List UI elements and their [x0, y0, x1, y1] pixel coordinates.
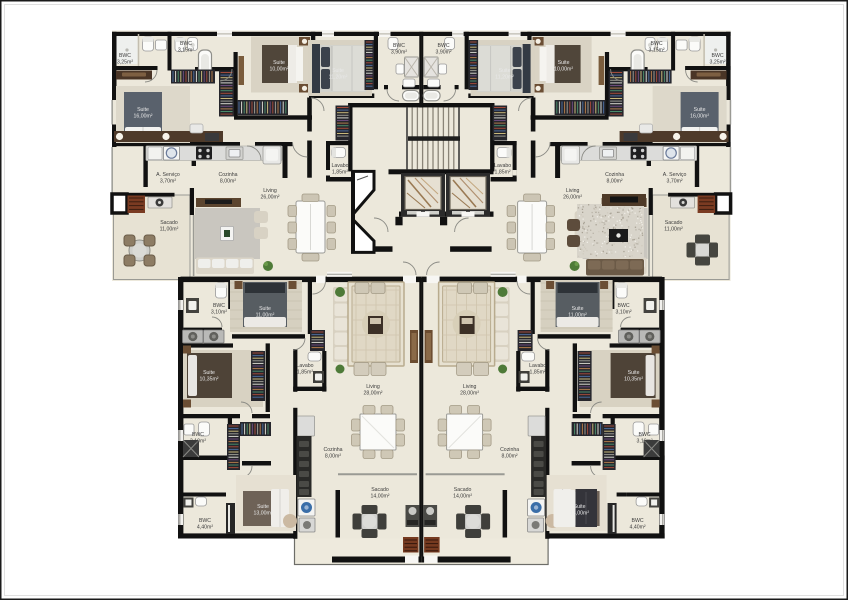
- svg-text:3,10m²: 3,10m²: [637, 438, 653, 444]
- svg-text:16,00m²: 16,00m²: [133, 113, 152, 119]
- svg-text:Suite: Suite: [257, 504, 269, 510]
- svg-text:Sacado: Sacado: [371, 487, 389, 493]
- svg-text:BWC: BWC: [651, 41, 663, 47]
- svg-text:BWC: BWC: [199, 518, 211, 524]
- svg-text:11,00m²: 11,00m²: [160, 226, 179, 232]
- svg-text:11,00m²: 11,00m²: [664, 226, 683, 232]
- svg-text:Suite: Suite: [203, 370, 215, 376]
- svg-text:14,00m²: 14,00m²: [370, 493, 389, 499]
- svg-text:13,00m²: 13,00m²: [570, 510, 589, 516]
- svg-text:BWC: BWC: [632, 518, 644, 524]
- svg-text:8,00m²: 8,00m²: [502, 453, 518, 459]
- svg-text:26,00m²: 26,00m²: [260, 194, 279, 200]
- svg-text:Lavabo: Lavabo: [494, 163, 511, 169]
- svg-text:8,00m²: 8,00m²: [325, 453, 341, 459]
- svg-text:BWC: BWC: [393, 43, 405, 49]
- svg-text:A. Serviço: A. Serviço: [663, 172, 687, 178]
- svg-text:10,00m²: 10,00m²: [554, 66, 573, 72]
- svg-text:8,00m²: 8,00m²: [220, 178, 236, 184]
- svg-text:BWC: BWC: [639, 432, 651, 438]
- svg-text:3,10m²: 3,10m²: [616, 309, 632, 315]
- svg-text:Living: Living: [566, 188, 580, 194]
- svg-text:Living: Living: [366, 384, 380, 390]
- svg-text:Suite: Suite: [558, 60, 570, 66]
- svg-text:Suite: Suite: [259, 306, 271, 312]
- svg-text:1,85m²: 1,85m²: [530, 369, 546, 375]
- svg-text:Lavabo: Lavabo: [331, 163, 348, 169]
- svg-text:4,40m²: 4,40m²: [197, 524, 213, 530]
- svg-text:Suite: Suite: [332, 68, 344, 74]
- svg-text:BWC: BWC: [180, 41, 192, 47]
- svg-text:16,00m²: 16,00m²: [690, 113, 709, 119]
- svg-text:14,00m²: 14,00m²: [453, 493, 472, 499]
- svg-text:3,25m²: 3,25m²: [710, 59, 726, 65]
- svg-text:3,70m²: 3,70m²: [160, 178, 176, 184]
- svg-text:Suite: Suite: [137, 107, 149, 113]
- svg-text:13,00m²: 13,00m²: [253, 510, 272, 516]
- svg-text:BWC: BWC: [213, 303, 225, 309]
- svg-text:Cozinha: Cozinha: [323, 447, 342, 453]
- svg-text:BWC: BWC: [618, 303, 630, 309]
- svg-text:Suite: Suite: [499, 68, 511, 74]
- svg-text:3,15m²: 3,15m²: [649, 47, 665, 53]
- svg-text:Sacado: Sacado: [454, 487, 472, 493]
- svg-text:Suite: Suite: [572, 306, 584, 312]
- svg-text:10,00m²: 10,00m²: [269, 66, 288, 72]
- svg-text:11,20m²: 11,20m²: [329, 74, 348, 80]
- svg-text:8,00m²: 8,00m²: [607, 178, 623, 184]
- svg-text:28,00m²: 28,00m²: [363, 390, 382, 396]
- svg-text:3,15m²: 3,15m²: [178, 47, 194, 53]
- svg-text:Cozinha: Cozinha: [500, 447, 519, 453]
- svg-text:1,85m²: 1,85m²: [297, 369, 313, 375]
- svg-text:Suite: Suite: [574, 504, 586, 510]
- svg-text:3,10m²: 3,10m²: [190, 438, 206, 444]
- svg-text:Sacado: Sacado: [665, 220, 683, 226]
- svg-text:Suite: Suite: [694, 107, 706, 113]
- svg-text:Suite: Suite: [273, 60, 285, 66]
- svg-text:3,90m²: 3,90m²: [436, 49, 452, 55]
- svg-text:4,40m²: 4,40m²: [630, 524, 646, 530]
- svg-text:A. Serviço: A. Serviço: [156, 172, 180, 178]
- svg-text:1,85m²: 1,85m²: [495, 169, 511, 175]
- svg-text:BWC: BWC: [192, 432, 204, 438]
- svg-text:Lavabo: Lavabo: [296, 363, 313, 369]
- svg-text:Living: Living: [263, 188, 277, 194]
- svg-text:3,25m²: 3,25m²: [117, 59, 133, 65]
- svg-text:10,35m²: 10,35m²: [199, 376, 218, 382]
- svg-text:11,00m²: 11,00m²: [256, 312, 275, 318]
- svg-text:3,70m²: 3,70m²: [667, 178, 683, 184]
- svg-text:1,85m²: 1,85m²: [332, 169, 348, 175]
- svg-text:BWC: BWC: [119, 53, 131, 59]
- svg-text:26,00m²: 26,00m²: [563, 194, 582, 200]
- svg-text:BWC: BWC: [712, 53, 724, 59]
- svg-text:10,35m²: 10,35m²: [624, 376, 643, 382]
- svg-text:11,20m²: 11,20m²: [495, 74, 514, 80]
- svg-text:3,90m²: 3,90m²: [391, 49, 407, 55]
- svg-text:Lavabo: Lavabo: [529, 363, 546, 369]
- svg-text:Suite: Suite: [628, 370, 640, 376]
- svg-text:Sacado: Sacado: [160, 220, 178, 226]
- svg-text:BWC: BWC: [438, 43, 450, 49]
- svg-text:11,00m²: 11,00m²: [568, 312, 587, 318]
- svg-text:28,00m²: 28,00m²: [460, 390, 479, 396]
- svg-text:Cozinha: Cozinha: [605, 172, 624, 178]
- svg-text:3,10m²: 3,10m²: [211, 309, 227, 315]
- svg-text:Cozinha: Cozinha: [218, 172, 237, 178]
- svg-text:Living: Living: [463, 384, 477, 390]
